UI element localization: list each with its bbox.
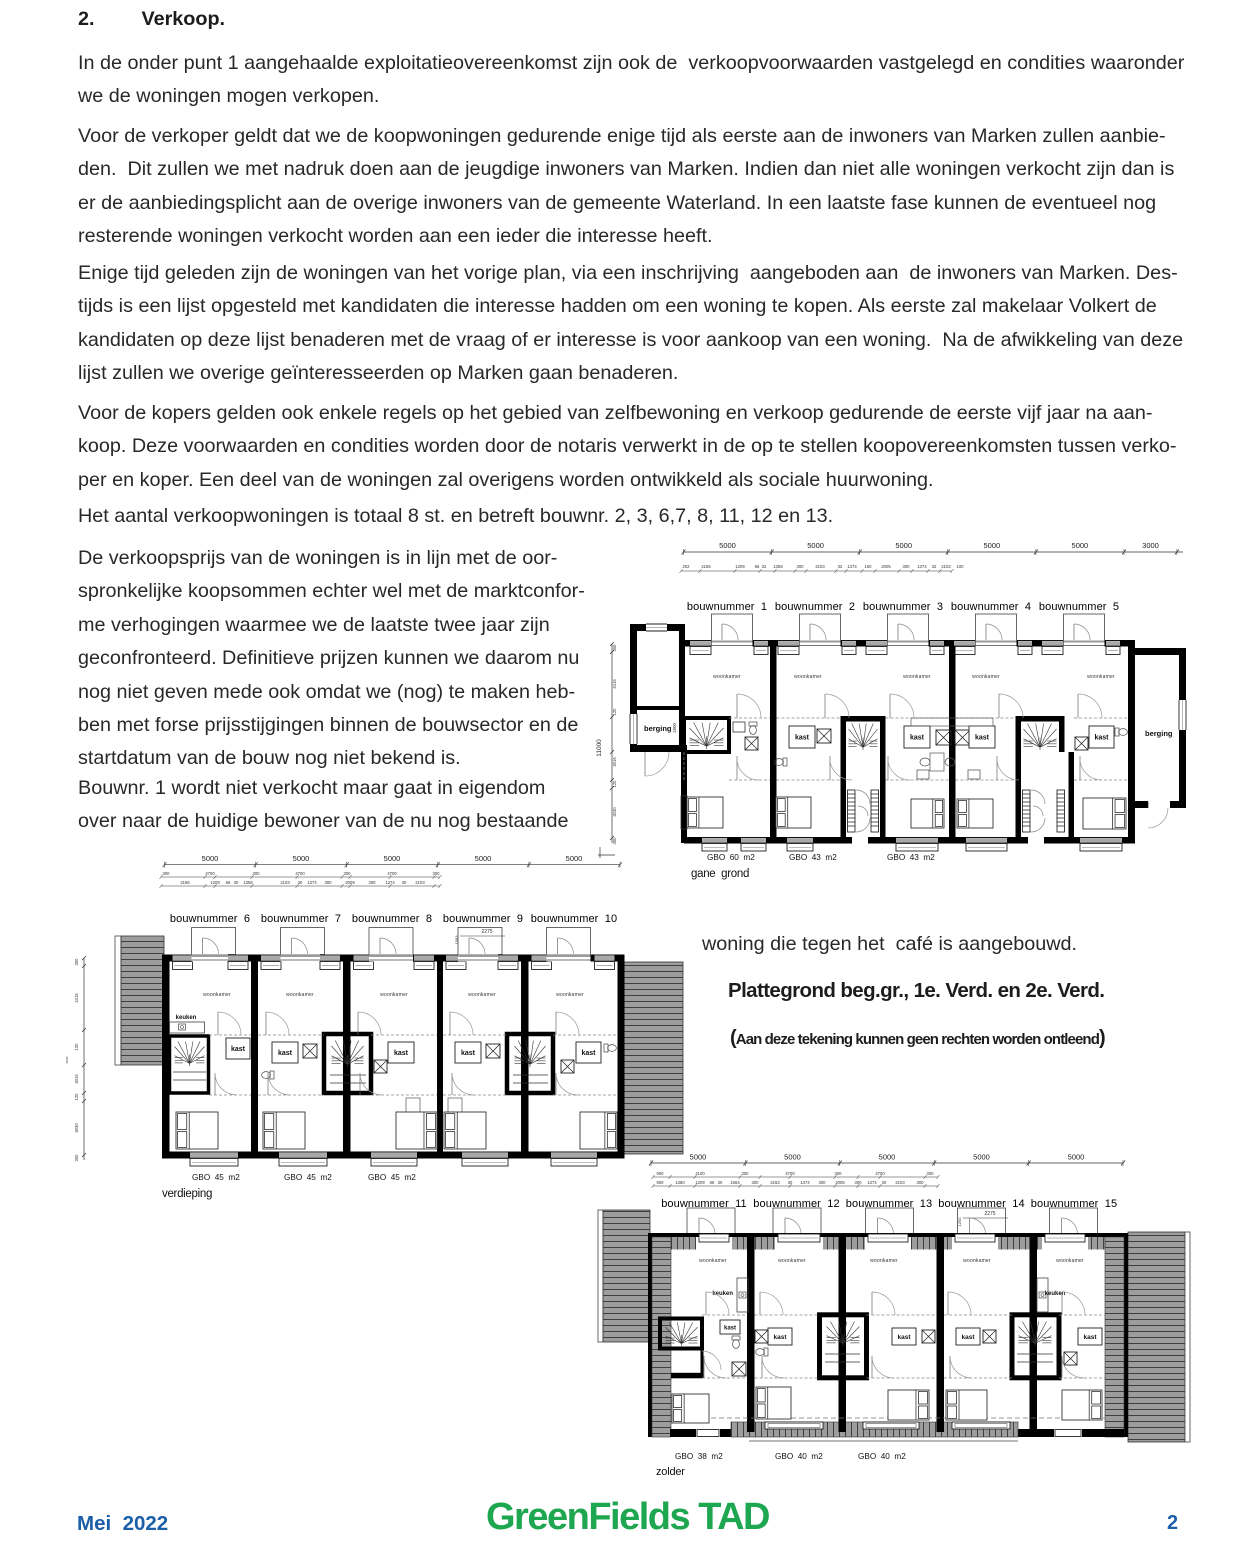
- svg-text:4700: 4700: [875, 1171, 885, 1176]
- svg-text:1564: 1564: [730, 1180, 740, 1185]
- svg-text:2103: 2103: [895, 1180, 905, 1185]
- svg-text:900: 900: [657, 1171, 665, 1176]
- svg-text:300: 300: [855, 1180, 863, 1185]
- svg-text:5000: 5000: [973, 1153, 990, 1162]
- svg-text:5000: 5000: [1068, 1153, 1085, 1162]
- svg-text:4100: 4100: [695, 1171, 705, 1176]
- svg-text:2275: 2275: [984, 1211, 995, 1217]
- svg-text:1380: 1380: [675, 1180, 685, 1185]
- svg-text:woonkamer: woonkamer: [778, 1258, 806, 1264]
- svg-text:GBO 40 m2: GBO 40 m2: [858, 1452, 906, 1461]
- svg-text:900: 900: [657, 1180, 665, 1185]
- svg-text:30: 30: [882, 1180, 887, 1185]
- svg-text:5000: 5000: [690, 1153, 707, 1162]
- svg-text:woonkamer: woonkamer: [699, 1258, 727, 1264]
- svg-text:GBO 38 m2: GBO 38 m2: [675, 1452, 723, 1461]
- svg-text:66: 66: [710, 1180, 715, 1185]
- svg-text:300: 300: [835, 1171, 843, 1176]
- svg-text:300: 300: [742, 1171, 750, 1176]
- svg-text:5000: 5000: [784, 1153, 801, 1162]
- svg-text:zolder: zolder: [656, 1466, 685, 1478]
- svg-text:300: 300: [927, 1171, 935, 1176]
- svg-text:woonkamer: woonkamer: [870, 1258, 898, 1264]
- svg-text:1374: 1374: [867, 1180, 877, 1185]
- svg-text:2005: 2005: [835, 1180, 845, 1185]
- svg-text:300: 300: [752, 1180, 760, 1185]
- svg-text:kast: kast: [773, 1334, 787, 1341]
- svg-text:kast: kast: [1083, 1334, 1097, 1341]
- svg-text:kast: kast: [897, 1334, 911, 1341]
- svg-text:5000: 5000: [879, 1153, 896, 1162]
- svg-text:2153: 2153: [770, 1180, 780, 1185]
- svg-text:kast: kast: [724, 1326, 736, 1332]
- svg-text:4700: 4700: [785, 1171, 795, 1176]
- svg-text:300: 300: [819, 1180, 827, 1185]
- svg-text:30: 30: [788, 1180, 793, 1185]
- svg-text:30: 30: [718, 1180, 723, 1185]
- svg-text:300: 300: [917, 1180, 925, 1185]
- svg-text:GBO 40 m2: GBO 40 m2: [775, 1452, 823, 1461]
- svg-text:kast: kast: [961, 1334, 975, 1341]
- svg-text:woonkamer: woonkamer: [963, 1258, 991, 1264]
- svg-text:1374: 1374: [800, 1180, 810, 1185]
- svg-text:woonkamer: woonkamer: [1056, 1258, 1084, 1264]
- svg-text:1209: 1209: [695, 1180, 705, 1185]
